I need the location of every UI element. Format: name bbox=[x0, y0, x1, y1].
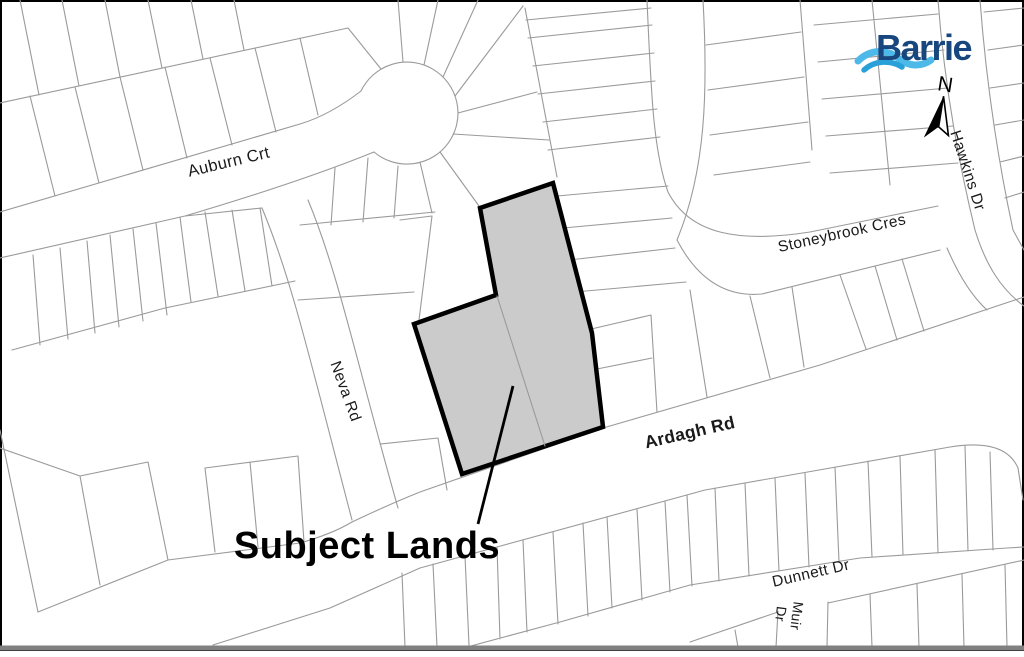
location-map: Auburn Crt Neva Rd Stoneybrook Cres Hawk… bbox=[0, 0, 1024, 657]
city-logo: Barrie bbox=[858, 27, 972, 70]
map-canvas: Auburn Crt Neva Rd Stoneybrook Cres Hawk… bbox=[0, 0, 1024, 657]
street-label-muir-line2: Dr bbox=[772, 605, 790, 622]
subject-lands-label: Subject Lands bbox=[234, 525, 500, 567]
logo-text: Barrie bbox=[876, 27, 972, 68]
